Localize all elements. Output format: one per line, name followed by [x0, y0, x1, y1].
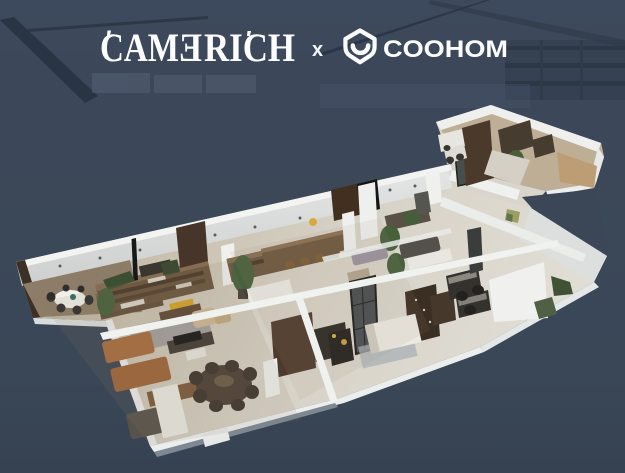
- svg-text:x: x: [312, 39, 323, 61]
- svg-text:CAM: CAM: [100, 25, 179, 70]
- svg-text:E: E: [179, 25, 202, 70]
- svg-text:COOHOM: COOHOM: [383, 36, 508, 63]
